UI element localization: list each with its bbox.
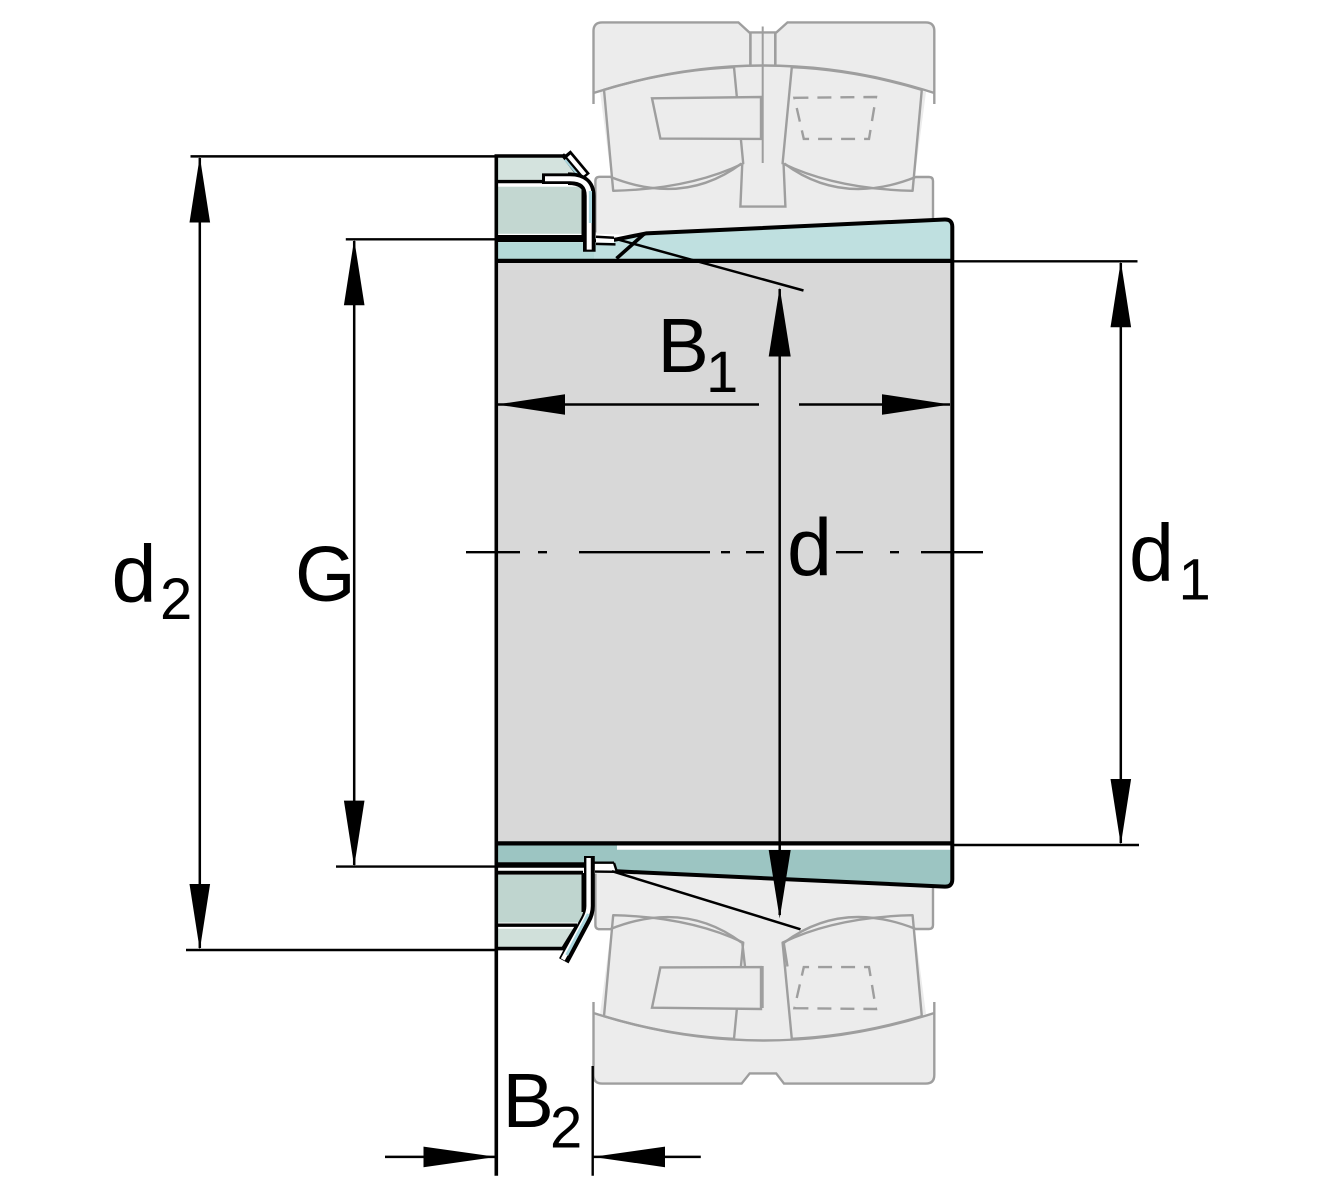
svg-text:d: d (787, 503, 832, 593)
svg-text:1: 1 (1179, 548, 1211, 613)
svg-text:B: B (503, 1058, 554, 1144)
svg-text:d: d (112, 530, 157, 620)
svg-text:2: 2 (550, 1096, 582, 1161)
svg-text:B: B (658, 303, 709, 389)
svg-text:d: d (1129, 509, 1174, 599)
svg-text:G: G (295, 529, 356, 617)
svg-text:1: 1 (706, 340, 738, 405)
svg-text:2: 2 (160, 567, 192, 632)
